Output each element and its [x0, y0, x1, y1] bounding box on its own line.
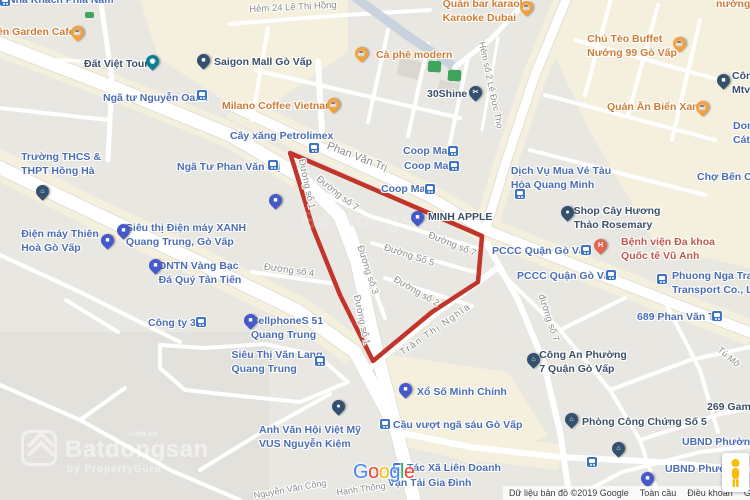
pin-karaoke-dubai[interactable]: ☕: [517, 0, 535, 16]
truong-thcs-thpt-hong-ha[interactable]: Trường THCS &THPT Hồng Hà: [21, 150, 101, 178]
nha-khach-phia-nam[interactable]: Nhà Khách Phía Nam: [8, 0, 114, 7]
vus-nguyen-kiem[interactable]: Anh Văn Hội Việt MỹVUS Nguyễn Kiệm: [259, 423, 361, 451]
cho-ben-cat[interactable]: Chợ Bến Cát: [697, 170, 750, 184]
map-canvas[interactable]: Batdongsan Nhà Khách Phía Namên Garden C…: [0, 0, 750, 500]
map-data-attribution: Dữ liệu bản đồ ©2019 Google: [509, 488, 629, 498]
pin-xo-so-minh-chinh[interactable]: ■: [396, 380, 414, 398]
transit-icon-5[interactable]: [449, 161, 459, 171]
google-logo-letter: o: [379, 461, 390, 483]
pin-dien-may-xanh[interactable]: ■: [114, 221, 132, 239]
pin-cellphones[interactable]: ■: [241, 311, 259, 329]
transit-icon-6[interactable]: [425, 184, 435, 194]
ca-phe-modern[interactable]: Cà phê modern: [376, 48, 452, 62]
transit-icon-2[interactable]: [268, 160, 278, 170]
benh-vien-vu-anh[interactable]: Bệnh viện Đa khoaQuốc tế Vũ Anh: [621, 235, 715, 263]
google-logo-letter: e: [404, 461, 415, 483]
saigon-mall-go-vap[interactable]: Saigon Mall Gò Vấp: [214, 55, 312, 69]
transit-icon-12[interactable]: [196, 317, 206, 327]
pin-cong-ty-mtv[interactable]: ■: [714, 71, 732, 89]
transit-icon-7[interactable]: [515, 189, 525, 199]
cong-ty-32[interactable]: Công ty 32: [148, 316, 202, 330]
dien-may-thien-hoa[interactable]: Điện máy ThiênHoà Gò Vấp: [21, 227, 99, 255]
pin-vus[interactable]: ●: [329, 397, 347, 415]
30shine[interactable]: 30Shine: [427, 87, 467, 101]
pin-minh-apple[interactable]: ■: [408, 208, 426, 226]
pin-rosemary-shop[interactable]: ●: [558, 203, 576, 221]
pin-30shine[interactable]: ✂: [466, 83, 484, 101]
pin-dat-viet-tour[interactable]: ◉: [143, 52, 161, 70]
pin-quan-an-bien-xanh[interactable]: ☕: [693, 98, 711, 116]
pin-cong-an-phuong-7[interactable]: ⌂: [524, 350, 542, 368]
pin-shop-pvt[interactable]: ■: [266, 191, 284, 209]
phong-cong-chung-so-5[interactable]: Phòng Công Chứng Số 5: [582, 415, 707, 429]
pin-garden-cafe[interactable]: ☕: [68, 23, 86, 41]
sieu-thi-van-lang[interactable]: Siêu Thị Văn LangQuang Trung: [231, 348, 322, 376]
pin-milano-coffee[interactable]: ☕: [324, 95, 342, 113]
transit-icon-14[interactable]: [380, 419, 390, 429]
minh-apple[interactable]: MINH APPLE: [428, 210, 492, 224]
pccc-quan-go-vap-2[interactable]: PCCC Quận Gò Vấp: [517, 269, 616, 283]
689-phan-van-tri[interactable]: 689 Phan Văn Trị: [637, 310, 721, 324]
green-marker-0: [85, 12, 94, 18]
google-logo-letter: g: [389, 461, 400, 483]
transit-icon-8[interactable]: [581, 245, 591, 255]
green-marker-2: [448, 70, 461, 81]
milano-coffee-vietnam[interactable]: Milano Coffee Vietnam: [222, 99, 334, 113]
cong-an-phuong-7[interactable]: Công An Phường7 Quận Gò Vấp: [539, 348, 627, 376]
attribution-bar: Dữ liệu bản đồ ©2019 Google Toàn cầu Điề…: [503, 486, 750, 500]
pin-phong-cong-chung[interactable]: ⌂: [562, 410, 580, 428]
google-logo-letter: o: [368, 461, 379, 483]
attribution-link-global[interactable]: Toàn cầu: [640, 488, 677, 498]
pin-hong-ha-school[interactable]: ⌂: [33, 182, 51, 200]
pin-school-2[interactable]: ⌂: [609, 439, 627, 457]
phuong-nga-transport[interactable]: Phuong Nga TradTransport Co., Ltd: [672, 269, 750, 297]
quan-bar-karaoke-dubai[interactable]: Quán bar karaokeKaraoke Dubai: [443, 0, 532, 25]
transit-icon-13[interactable]: [315, 356, 325, 366]
pin-ubnd[interactable]: ■: [638, 469, 656, 487]
dich-vu-mua-ve-tau[interactable]: Dịch Vụ Mua Vé TàuHỏa Quang Minh: [511, 164, 611, 192]
green-marker-1: [428, 61, 441, 72]
269-gami[interactable]: 269 Gami: [707, 400, 750, 414]
nga-tu-nguyen-oanh[interactable]: Ngã tư Nguyễn Oanh: [103, 91, 208, 105]
transit-icon-4[interactable]: [448, 146, 458, 156]
batdongsan-logo-icon: [21, 430, 57, 466]
transit-icon-1[interactable]: [197, 90, 207, 100]
quan-nuong[interactable]: nướng: [716, 0, 750, 11]
watermark-byline: by PropertyGuru: [67, 465, 209, 475]
cat-y[interactable]: DonCát Y: [733, 119, 750, 147]
ubnd-phuong-5[interactable]: UBND Phường 5: [682, 435, 750, 449]
pin-chu-teo-buffet[interactable]: ☕: [670, 34, 688, 52]
pegman-icon: [722, 453, 749, 492]
cellphones-51[interactable]: CellphoneS 51Quang Trung: [251, 314, 323, 342]
garden-cafe[interactable]: ên Garden Cafe: [0, 25, 75, 39]
watermark-batdongsan: .com.vn Batdongsan by PropertyGuru: [21, 430, 209, 475]
pegman-street-view-control[interactable]: [722, 453, 749, 492]
transit-icon-11[interactable]: [712, 311, 722, 321]
transit-icon-3[interactable]: [309, 143, 319, 153]
chu-teo-buffet[interactable]: Chú Tèo BuffetNướng 99 Gò Vấp: [587, 32, 677, 60]
pin-benh-vien-vu-anh[interactable]: H: [591, 236, 609, 254]
nga-tu-phan-van-tri[interactable]: Ngã Tư Phan Văn Trị: [177, 160, 280, 174]
pin-ca-phe-modern[interactable]: ☕: [352, 44, 370, 62]
xo-so-minh-chinh[interactable]: Xổ Số Minh Chính: [417, 385, 507, 399]
pin-saigon-mall[interactable]: ■: [194, 51, 212, 69]
pin-dien-may-thien-hoa[interactable]: ■: [98, 231, 116, 249]
dntn-tan-tien[interactable]: DNTN Vàng BạcĐá Quý Tân Tiến: [159, 259, 242, 287]
dien-may-xanh[interactable]: Siêu thị Điện máy XANHQuang Trung, Gò Vấ…: [126, 221, 246, 249]
pccc-quan-go-vap-1[interactable]: PCCC Quận Gò Vấp: [492, 244, 591, 258]
dat-viet-tour[interactable]: Đất Việt Tour: [84, 57, 148, 71]
watermark-brand: Batdongsan: [65, 438, 209, 462]
google-logo-letter: G: [353, 461, 368, 483]
google-logo[interactable]: Google: [353, 461, 415, 484]
cong-ty-mtv[interactable]: CônMtv: [732, 69, 750, 97]
transit-icon-16[interactable]: [587, 457, 597, 467]
pin-dntn-tan-tien[interactable]: ■: [146, 256, 164, 274]
shop-cay-huong-thao[interactable]: Shop Cây HươngThảo Rosemary: [574, 204, 661, 232]
transit-icon-9[interactable]: [606, 270, 616, 280]
transit-icon-0[interactable]: [0, 0, 10, 6]
hop-tac-xa-lien-doanh[interactable]: Tác Xã Liên Doanh: [407, 461, 501, 475]
cay-xang-petrolimex[interactable]: Cây xăng Petrolimex: [230, 129, 333, 143]
cau-vuot-nga-sau[interactable]: Cầu vượt ngã sáu Gò Vấp: [393, 418, 522, 432]
quan-an-bien-xanh[interactable]: Quán Ăn Biển Xanh: [607, 100, 705, 114]
transit-icon-10[interactable]: [657, 274, 667, 284]
